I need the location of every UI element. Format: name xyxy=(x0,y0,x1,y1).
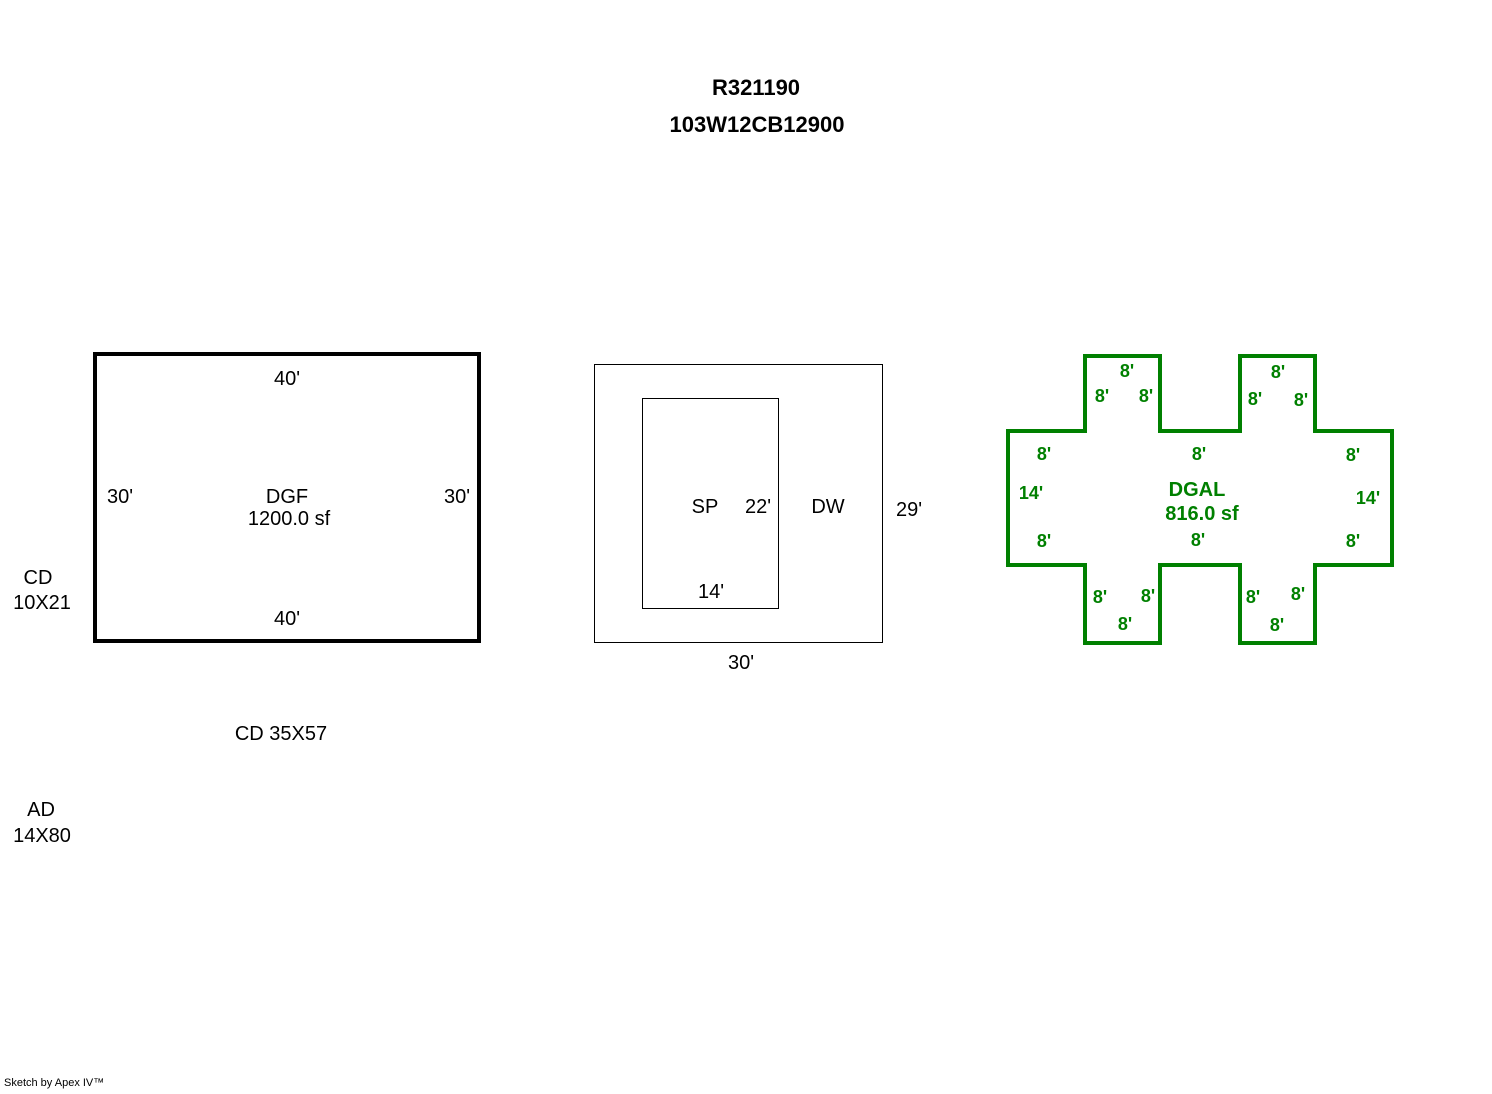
dgal-dim-tower-bl-right: 8' xyxy=(1141,587,1155,605)
dgal-dim-bottom-left: 8' xyxy=(1037,532,1051,550)
sp-dim-right: 22' xyxy=(745,497,771,517)
dgal-dim-side-right: 14' xyxy=(1356,489,1380,507)
note-cd-small-line1: CD xyxy=(24,568,53,588)
dgal-dim-top-center: 8' xyxy=(1192,445,1206,463)
dgal-dim-tower-tr-right: 8' xyxy=(1294,391,1308,409)
dgal-dim-tower-br-right: 8' xyxy=(1291,585,1305,603)
dgal-dim-bottom-center: 8' xyxy=(1191,531,1205,549)
dgal-dim-bottom-right: 8' xyxy=(1346,532,1360,550)
apex-credit: Sketch by Apex IV™ xyxy=(4,1077,104,1089)
note-cd-large: CD 35X57 xyxy=(235,724,327,744)
note-ad-line1: AD xyxy=(27,800,55,820)
dgal-dim-top-left: 8' xyxy=(1037,445,1051,463)
dgal-dim-top-right: 8' xyxy=(1346,446,1360,464)
dgal-dim-tower-tr-left: 8' xyxy=(1248,390,1262,408)
dgal-dim-tower-tl-top: 8' xyxy=(1120,362,1134,380)
sp-dim-bottom: 14' xyxy=(698,582,724,602)
dw-label: DW xyxy=(811,497,844,517)
dgf-dim-bottom: 40' xyxy=(274,609,300,629)
dw-dim-bottom: 30' xyxy=(728,653,754,673)
dgal-dim-tower-br-bottom: 8' xyxy=(1270,616,1284,634)
dgal-dim-tower-tr-top: 8' xyxy=(1271,363,1285,381)
dgal-dim-tower-bl-left: 8' xyxy=(1093,588,1107,606)
dgal-area: 816.0 sf xyxy=(1165,504,1238,524)
dgal-dim-side-left: 14' xyxy=(1019,484,1043,502)
dgal-dim-tower-br-left: 8' xyxy=(1246,588,1260,606)
note-ad-line2: 14X80 xyxy=(13,826,71,846)
sketch-id-secondary: 103W12CB12900 xyxy=(670,114,845,136)
dgf-dim-top: 40' xyxy=(274,369,300,389)
dgal-dim-tower-bl-bottom: 8' xyxy=(1118,615,1132,633)
dw-dim-right: 29' xyxy=(896,500,922,520)
dgal-dim-tower-tl-right: 8' xyxy=(1139,387,1153,405)
dgf-dim-right: 30' xyxy=(444,487,470,507)
note-cd-small-line2: 10X21 xyxy=(13,593,71,613)
dgal-label: DGAL xyxy=(1169,480,1226,500)
dgal-dim-tower-tl-left: 8' xyxy=(1095,387,1109,405)
sketch-id-primary: R321190 xyxy=(712,77,800,99)
dgf-area: 1200.0 sf xyxy=(248,509,330,529)
dgf-dim-left: 30' xyxy=(107,487,133,507)
sp-label: SP xyxy=(692,497,719,517)
dgf-label: DGF xyxy=(266,487,308,507)
sketch-page: R321190 103W12CB12900 40' 30' 30' 40' DG… xyxy=(0,0,1492,1094)
